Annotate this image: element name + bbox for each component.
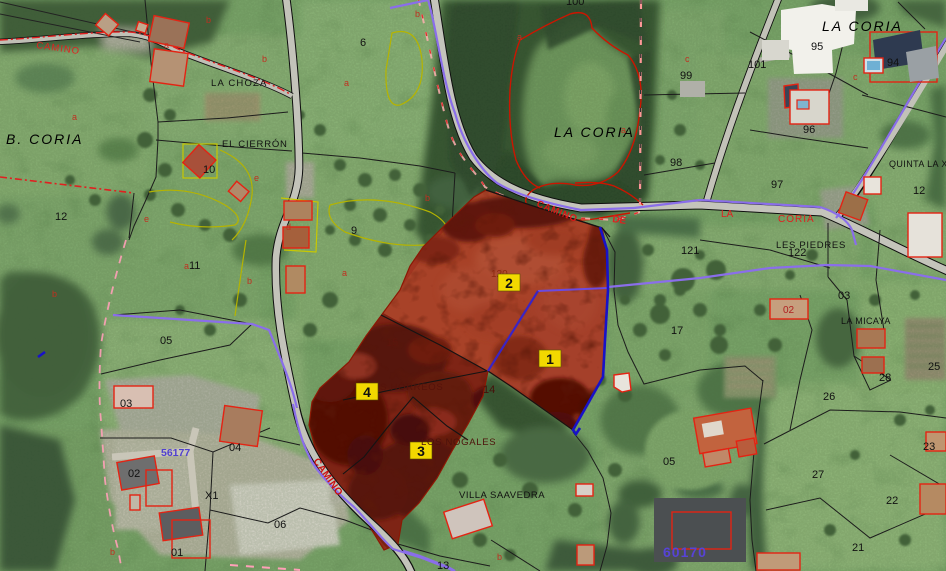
svg-text:14: 14 xyxy=(483,384,495,396)
svg-text:21: 21 xyxy=(852,542,864,554)
svg-text:b: b xyxy=(247,276,252,286)
svg-text:17: 17 xyxy=(671,325,683,337)
svg-text:27: 27 xyxy=(812,469,824,481)
svg-text:a: a xyxy=(517,32,522,42)
svg-text:13: 13 xyxy=(437,560,449,571)
svg-text:X1: X1 xyxy=(205,490,218,502)
svg-text:1: 1 xyxy=(546,351,554,367)
svg-text:CORIA: CORIA xyxy=(778,214,815,225)
svg-text:a: a xyxy=(342,268,347,278)
svg-text:10: 10 xyxy=(203,164,215,176)
svg-text:12: 12 xyxy=(913,185,925,197)
svg-text:B. CORIA: B. CORIA xyxy=(6,131,83,147)
svg-text:02: 02 xyxy=(128,468,140,480)
svg-text:d: d xyxy=(286,222,291,232)
svg-text:a: a xyxy=(164,40,169,50)
svg-text:01: 01 xyxy=(171,547,183,559)
svg-text:LA CORIA: LA CORIA xyxy=(822,18,903,34)
svg-text:12: 12 xyxy=(55,211,67,223)
svg-text:101: 101 xyxy=(748,59,766,71)
svg-text:56177: 56177 xyxy=(161,447,190,459)
svg-text:a: a xyxy=(344,78,349,88)
svg-text:15: 15 xyxy=(386,337,398,349)
svg-text:05: 05 xyxy=(160,335,172,347)
svg-text:e: e xyxy=(144,214,149,224)
svg-text:02: 02 xyxy=(783,305,795,316)
svg-text:b: b xyxy=(415,9,420,19)
svg-text:LOS NOGALES: LOS NOGALES xyxy=(421,437,496,448)
svg-text:03: 03 xyxy=(838,290,850,302)
svg-text:04: 04 xyxy=(229,442,241,454)
svg-text:60170: 60170 xyxy=(663,544,707,560)
svg-text:6: 6 xyxy=(360,37,366,49)
svg-text:b: b xyxy=(262,54,267,64)
svg-text:100: 100 xyxy=(566,0,584,8)
svg-text:97: 97 xyxy=(771,179,783,191)
svg-text:26: 26 xyxy=(823,391,835,403)
svg-text:98: 98 xyxy=(670,157,682,169)
svg-text:b: b xyxy=(206,15,211,25)
svg-text:2: 2 xyxy=(505,275,513,291)
svg-text:b: b xyxy=(110,547,115,557)
svg-text:LA MICAYA: LA MICAYA xyxy=(841,316,891,326)
svg-text:22: 22 xyxy=(886,495,898,507)
svg-text:28: 28 xyxy=(879,372,891,384)
svg-text:05: 05 xyxy=(663,456,675,468)
svg-text:a: a xyxy=(621,125,626,135)
svg-text:b: b xyxy=(497,552,502,562)
svg-text:QUINTA LA X: QUINTA LA X xyxy=(889,159,946,169)
svg-text:96: 96 xyxy=(803,124,815,136)
svg-text:95: 95 xyxy=(811,41,823,53)
svg-text:LES PIEDRES: LES PIEDRES xyxy=(776,240,846,251)
svg-text:EL CIERRÓN: EL CIERRÓN xyxy=(222,139,288,150)
svg-text:c: c xyxy=(685,54,690,64)
svg-text:DE: DE xyxy=(612,214,628,227)
svg-text:c: c xyxy=(853,72,858,82)
svg-text:06: 06 xyxy=(274,519,286,531)
svg-text:25: 25 xyxy=(928,361,940,373)
svg-text:a: a xyxy=(184,261,189,271)
svg-text:94: 94 xyxy=(887,57,899,69)
svg-text:LA CHOZA: LA CHOZA xyxy=(211,78,268,89)
svg-text:23: 23 xyxy=(923,441,935,453)
svg-text:b: b xyxy=(425,193,430,203)
svg-text:a: a xyxy=(72,112,77,122)
svg-text:121: 121 xyxy=(681,245,699,257)
svg-text:VILLA SAAVEDRA: VILLA SAAVEDRA xyxy=(459,490,545,501)
svg-text:4: 4 xyxy=(363,384,371,400)
svg-text:9: 9 xyxy=(351,225,357,237)
svg-text:03: 03 xyxy=(120,398,132,410)
svg-text:b: b xyxy=(52,289,57,299)
svg-text:11: 11 xyxy=(189,260,200,272)
svg-text:e: e xyxy=(254,173,259,183)
svg-text:LA: LA xyxy=(721,209,734,220)
svg-text:122: 122 xyxy=(788,247,806,259)
svg-text:99: 99 xyxy=(680,70,692,82)
